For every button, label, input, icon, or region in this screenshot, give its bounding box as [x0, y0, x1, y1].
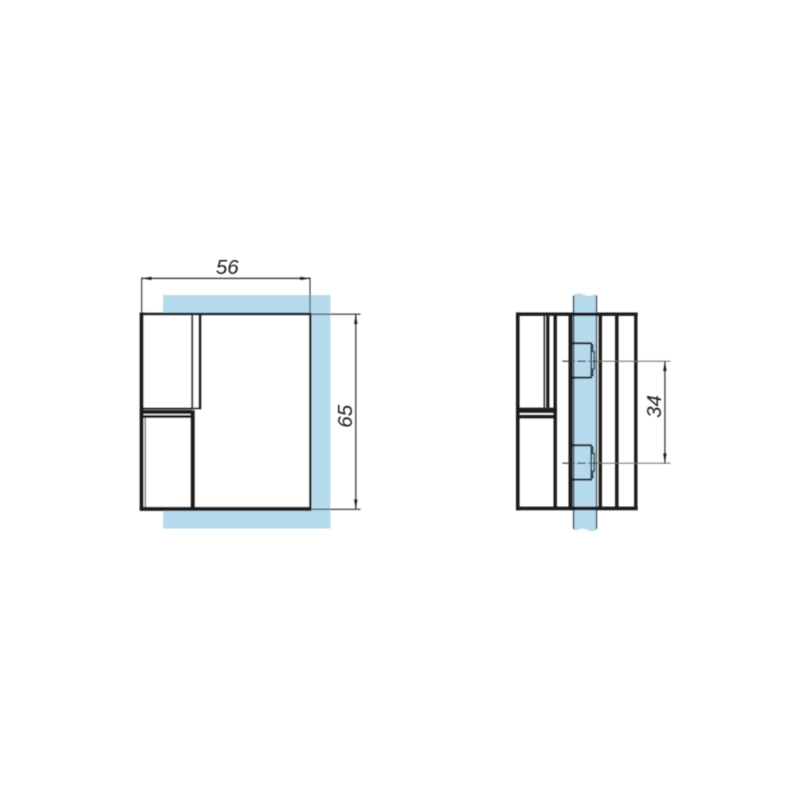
- svg-text:34: 34: [643, 395, 666, 418]
- svg-text:65: 65: [334, 404, 357, 427]
- svg-text:56: 56: [216, 256, 239, 279]
